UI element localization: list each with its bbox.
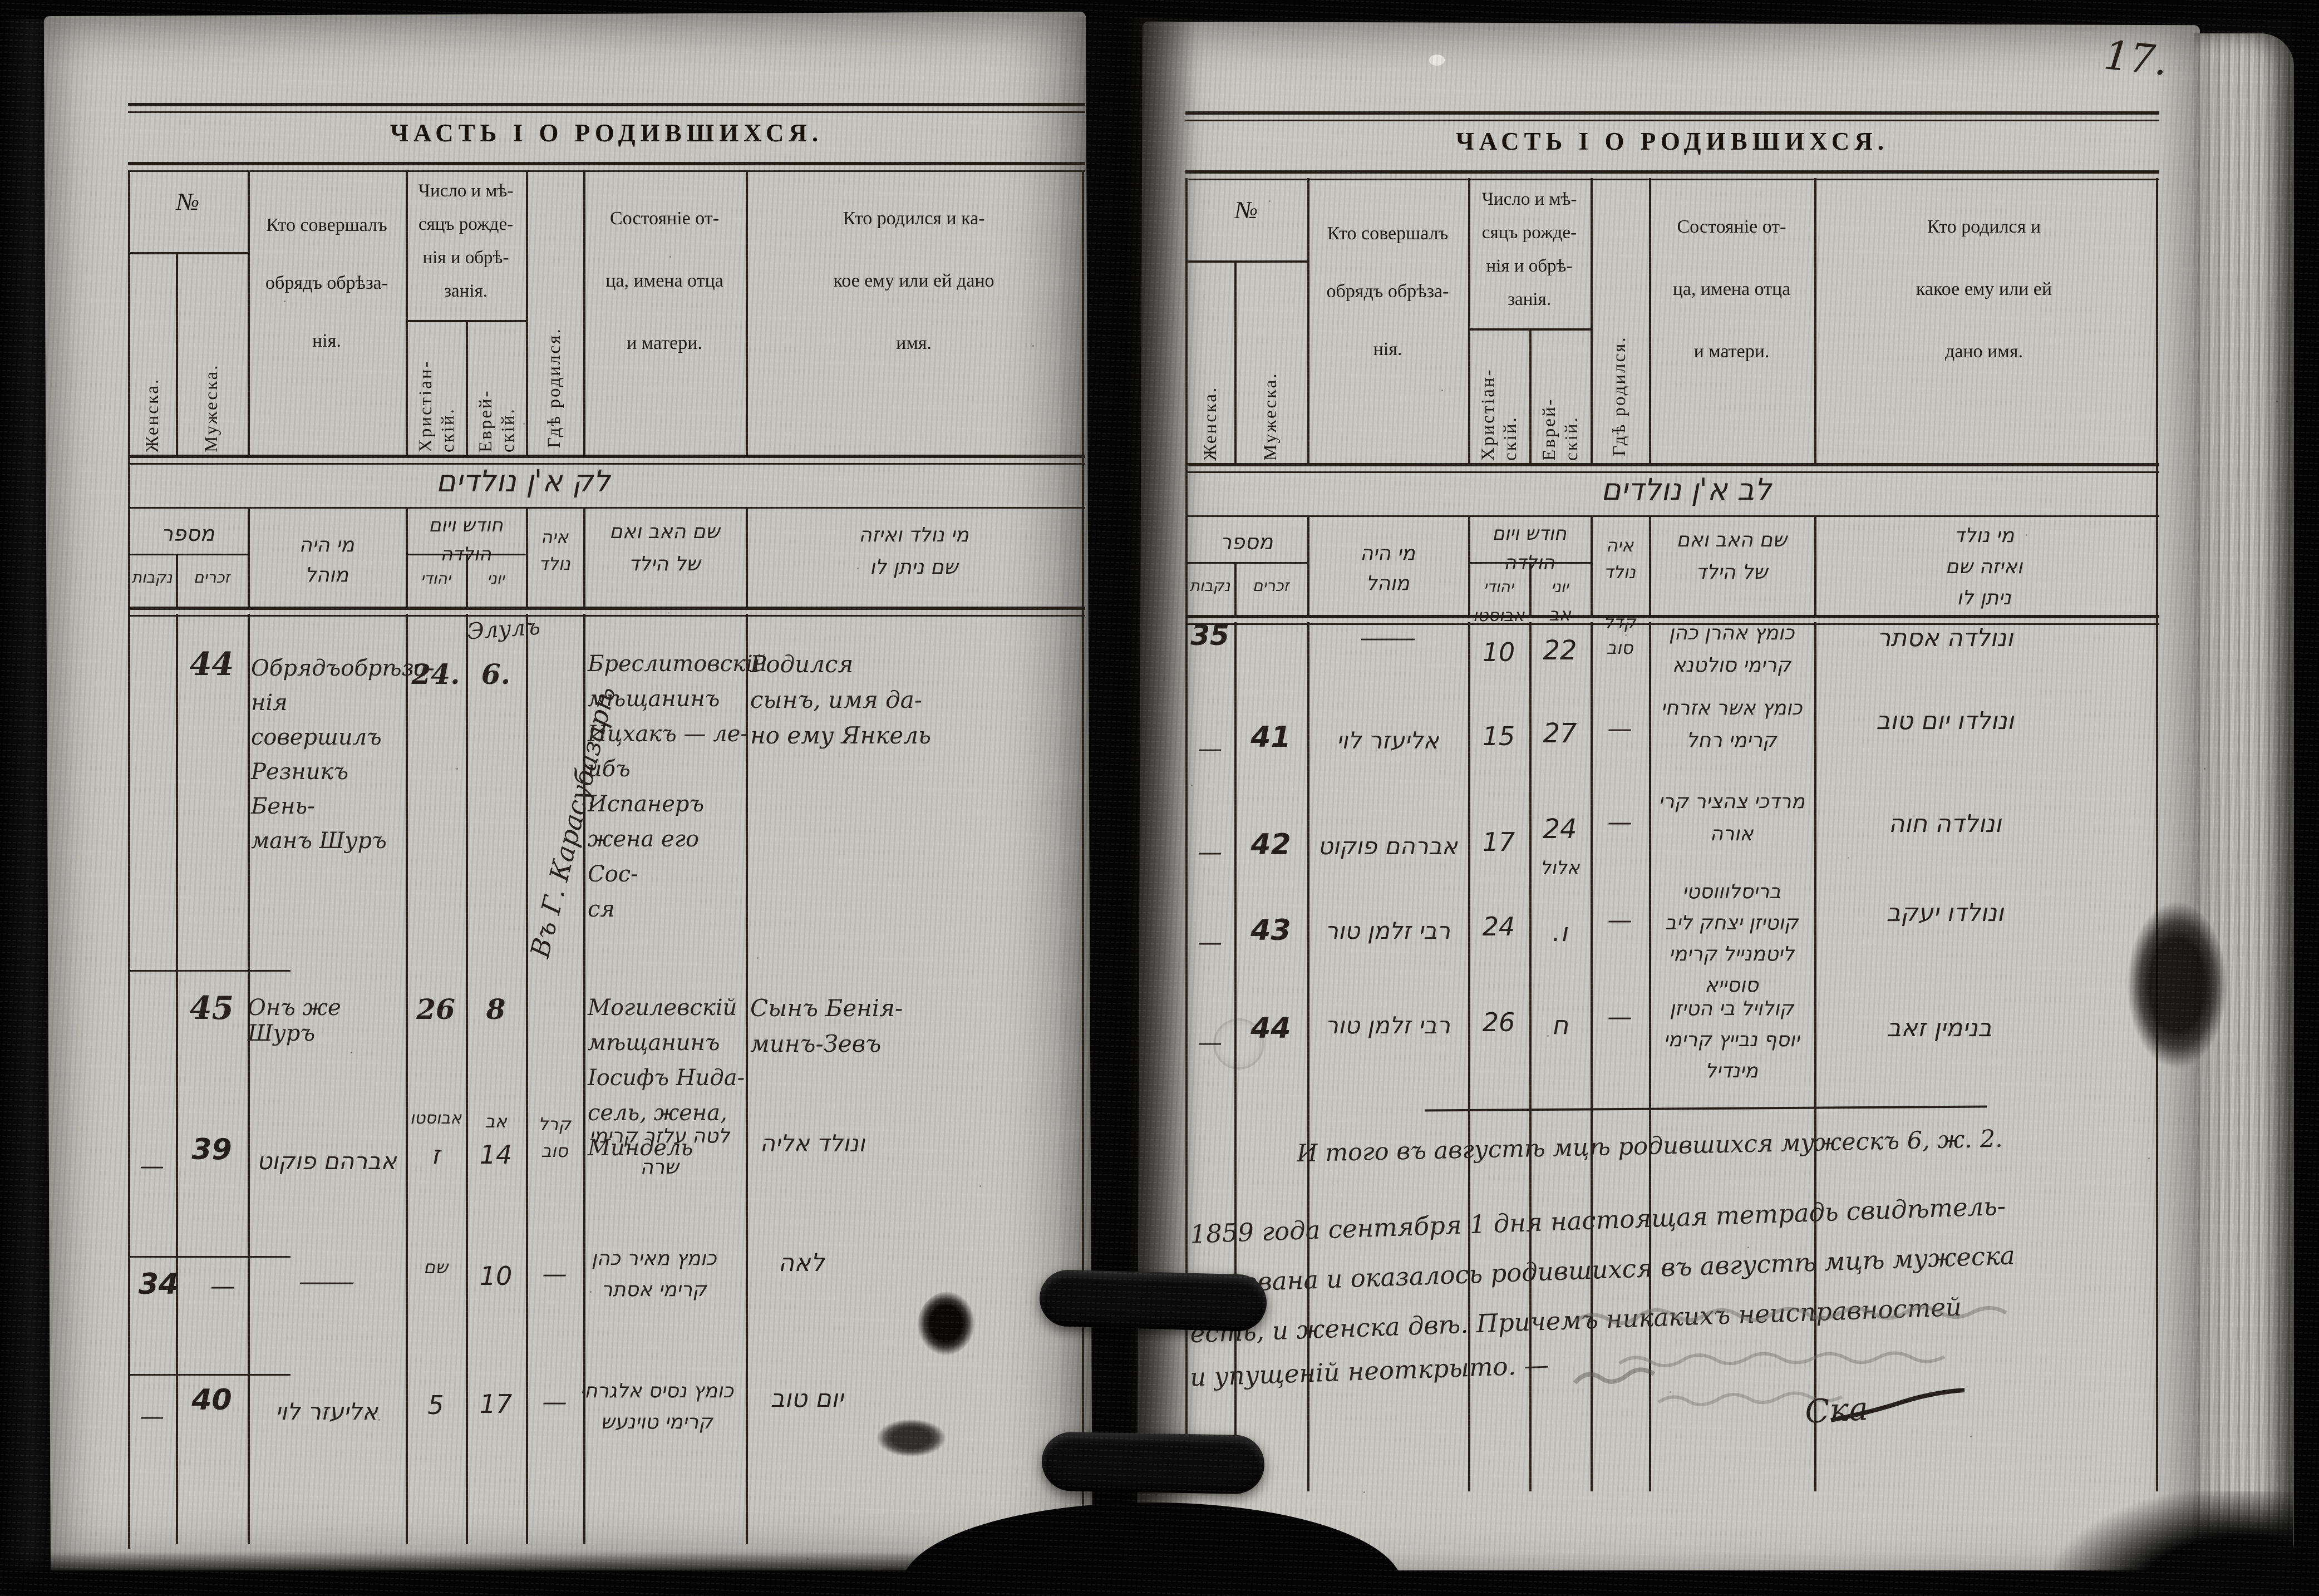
col-header-female: Женска. — [142, 378, 163, 452]
scan-right-band — [2292, 0, 2319, 1596]
jewish-date-cell: 27 — [1529, 718, 1591, 749]
he-header-num: מספר — [1185, 530, 1307, 554]
christian-date-cell: 26 — [1468, 1007, 1529, 1037]
name-cell: ונולדה חוה — [1820, 810, 2070, 838]
he-header-males: זכרים — [176, 568, 248, 587]
rule — [406, 320, 526, 322]
col-header-num: № — [128, 188, 248, 216]
col-header-where: Гдѣ родился. — [1609, 336, 1630, 456]
entry-number: 41 — [1234, 721, 1307, 754]
he-header-greek: יוני — [466, 569, 526, 588]
jewish-date-cell: ח — [1529, 1010, 1591, 1040]
page-edge-stack — [2194, 33, 2294, 1564]
name-cell: Родился сынъ, имя да- но ему Янкель — [746, 647, 1090, 753]
jewish-date-cell: 22 — [1529, 635, 1591, 666]
mohel-cell: אליעזר לוי — [1307, 727, 1468, 754]
female-dash: — — [1185, 735, 1234, 763]
christian-month-label: שם — [406, 1257, 466, 1278]
gutter-shadow — [1074, 17, 1197, 1569]
hebrew-title: לב א'ן נולדים — [1530, 472, 1842, 507]
certification-line-1: 1859 года сентября 1 дня настоящая тетра… — [1190, 1186, 2136, 1249]
col-header-jewish: Еврей- скій. — [475, 389, 519, 452]
christian-month-label: אבוסטו — [406, 1109, 466, 1128]
mohel-cell: רבי זלמן טור — [1307, 917, 1468, 944]
col-header-name: Кто родился и ка- кое ему или ей дано им… — [746, 188, 1082, 375]
name-cell: ונולדו יעקב — [1820, 899, 2070, 927]
jewish-month-label: Элулъ — [439, 612, 569, 647]
entry-number: 39 — [176, 1133, 248, 1166]
rule — [406, 554, 526, 555]
right-page-title: ЧАСТЬ I О РОДИВШИХСЯ. — [1185, 127, 2159, 156]
he-header-father: שם האב ואם של הילד — [583, 516, 746, 580]
he-header-greek: יוני — [1529, 578, 1591, 596]
where-dash: — — [1591, 1003, 1649, 1031]
he-header-jewish: יהודי — [1468, 578, 1529, 596]
rule — [1468, 328, 1591, 331]
rule — [128, 162, 1085, 172]
jewish-date-cell: 24 — [1529, 814, 1591, 845]
col-header-where: Гдѣ родился. — [544, 327, 565, 448]
paper-fleck — [1429, 55, 1445, 66]
rule — [1185, 170, 2159, 180]
entry-number-female: 35 — [1185, 619, 1234, 652]
he-header-females: נקבות — [1185, 577, 1234, 595]
rule — [128, 607, 1085, 617]
he-header-name: מי נולד ואיזה שם ניתן לו — [746, 519, 1082, 584]
signature-flourish — [1825, 1386, 1970, 1436]
mohel-cell: אליעזר לוי — [248, 1398, 406, 1425]
jewish-date-cell: 6. — [466, 658, 526, 691]
he-header-females: נקבות — [128, 568, 176, 587]
binding-clip-top — [1039, 1269, 1268, 1332]
entry-number: 44 — [176, 646, 248, 683]
name-cell: לאה — [707, 1249, 896, 1277]
rule — [1185, 111, 2159, 121]
where-born-cell: קדל סוב — [1591, 609, 1649, 661]
col-header-father: Состояніе от- ца, имена отца и матери. — [583, 188, 746, 375]
christian-date-cell: 15 — [1468, 721, 1529, 751]
where-dash: — — [1591, 715, 1649, 743]
rule — [128, 252, 248, 254]
monthly-total-line: И того въ августѣ мцѣ родившихся мужескъ… — [1297, 1122, 2154, 1168]
column-line — [1529, 329, 1532, 464]
father-cell: קולויל בי הטיזן יוסף נבייץ קרימי מינדיל — [1649, 993, 1814, 1087]
jewish-date-cell: 17 — [466, 1389, 526, 1419]
stain-ring — [1213, 1018, 1264, 1070]
name-cell: Сынъ Бенія- минъ-Зевъ — [746, 991, 1090, 1062]
jewish-month-below: אלול — [1529, 857, 1591, 879]
col-header-female: Женска. — [1200, 386, 1221, 461]
column-line — [1234, 262, 1237, 464]
column-line — [1082, 170, 1084, 1549]
book-scan: ЧАСТЬ I О РОДИВШИХСЯ. № Кто совершалъ об… — [0, 0, 2319, 1596]
rule — [128, 507, 1085, 509]
col-header-name: Кто родился и какое ему или ей дано имя. — [1814, 196, 2154, 383]
name-cell: ונולד אליה — [696, 1130, 929, 1157]
mohel-dash: — — [1307, 624, 1468, 652]
col-header-male: Мужеска. — [1261, 372, 1281, 461]
right-table: ЧАСТЬ I О РОДИВШИХСЯ. № Кто совершалъ об… — [1185, 111, 2159, 1503]
jewish-date-cell: 14 — [466, 1140, 526, 1170]
left-page-title: ЧАСТЬ I О РОДИВШИХСЯ. — [128, 119, 1085, 147]
he-header-num: מספר — [128, 521, 248, 546]
entry-number: 45 — [176, 989, 248, 1027]
christian-date-cell: 26 — [406, 993, 466, 1026]
col-header-male: Мужеска. — [201, 364, 222, 453]
he-header-where: איה נולד — [526, 524, 583, 577]
rule — [1185, 260, 1307, 263]
christian-date-cell: 24. — [406, 658, 466, 691]
mohel-cell: Онъ же Шуръ — [248, 995, 406, 1046]
col-header-mohel: Кто совершалъ обрядъ обрѣза- нія. — [1307, 205, 1468, 378]
entry-number: 43 — [1234, 914, 1307, 947]
column-line — [526, 170, 528, 456]
name-cell: ונולדה אסתר — [1820, 624, 2070, 652]
col-header-father: Состояніе от- ца, имена отца и матери. — [1649, 196, 1814, 383]
entry-number: 40 — [176, 1383, 248, 1417]
he-header-jewish: יהודי — [406, 569, 466, 588]
scan-bottom-left — [0, 1551, 946, 1596]
female-dash: — — [128, 1152, 176, 1180]
christian-date-cell: 5 — [406, 1390, 466, 1420]
col-header-date: Число и мѣ- сяцъ рожде- нія и обрѣ- зані… — [1468, 183, 1591, 316]
corner-shadow — [2054, 1491, 2293, 1596]
jewish-date-cell: 8 — [466, 993, 526, 1026]
col-header-christian: Христіан- скій. — [1477, 368, 1522, 461]
dust-specks — [167, 111, 169, 113]
entry-number-female: 34 — [128, 1268, 189, 1301]
father-cell: מרדכי צהציר קרי אורה — [1649, 786, 1814, 850]
col-header-date: Число и мѣ- сяцъ рожде- нія и обрѣ- зані… — [406, 174, 526, 308]
name-cell: בנימין זאב — [1809, 1014, 2070, 1042]
christian-month-label: אבוסטו — [1468, 606, 1529, 625]
christian-date-cell: 24 — [1468, 912, 1529, 942]
mohel-cell: אברהם פוקוט — [1307, 833, 1468, 860]
he-header-males: זכרים — [1234, 577, 1307, 595]
rule — [1185, 515, 2159, 517]
he-header-where: איה נולד — [1591, 532, 1649, 585]
rule — [1425, 1105, 1987, 1111]
mohel-cell: רבי זלמן טור — [1307, 1012, 1468, 1039]
entry-number: 42 — [1234, 828, 1307, 861]
rule — [128, 103, 1085, 113]
rule — [128, 970, 291, 972]
he-header-name: מי נולד ואיזה שם ניתן לו — [1814, 520, 2154, 614]
he-header-mohel: מי היה מוהל — [248, 530, 406, 590]
father-cell: בריסלוווסטי קוטיזן יצחק ליב ליטמנייל קרי… — [1649, 876, 1814, 1001]
column-line — [128, 170, 130, 1549]
dash: — — [1358, 624, 1417, 652]
column-line — [176, 253, 178, 456]
name-cell: יום טוב — [707, 1385, 907, 1413]
dash: — — [297, 1268, 356, 1296]
he-header-mohel: מי היה מוהל — [1307, 539, 1468, 599]
male-dash: — — [189, 1272, 256, 1301]
father-cell: כומץ אהרן כהן קרימי סולטנא — [1649, 617, 1814, 682]
father-cell: כומץ אשר אזרחי קרימי רחל — [1649, 692, 1814, 757]
col-header-jewish: Еврей- скій. — [1538, 397, 1583, 461]
where-dash: — — [1591, 808, 1649, 836]
rule — [128, 1374, 291, 1376]
name-cell: ונולדו יום טוב — [1820, 707, 2070, 735]
jewish-date-cell: ו. — [1529, 917, 1591, 947]
father-cell: Бреслитовскій мѣщанинъ Ицхакъ — ле- ибъ … — [583, 647, 750, 927]
he-header-date: חודש ויום הולדה — [406, 511, 526, 569]
christian-date-cell: 10 — [466, 1261, 526, 1291]
column-line — [1591, 178, 1593, 464]
ink-smudge — [877, 1419, 946, 1457]
jewish-month-label: אב — [466, 1111, 526, 1132]
col-header-mohel: Кто совершалъ обрядъ обрѣза- нія. — [248, 196, 406, 370]
binding-clip-bottom — [1041, 1432, 1265, 1495]
column-line — [466, 321, 468, 456]
christian-date-cell: 10 — [1468, 637, 1529, 667]
rule — [1185, 562, 1307, 564]
female-dash: — — [128, 1402, 176, 1431]
female-dash: — — [1185, 928, 1234, 957]
female-dash: — — [1185, 838, 1234, 866]
christian-date-cell: ז — [406, 1140, 466, 1170]
rule — [128, 554, 248, 555]
certification-line-2: ствована и оказалось родившихся въ авгус… — [1190, 1237, 2114, 1299]
col-header-christian: Христіан- скій. — [415, 359, 459, 452]
christian-date-cell: 17 — [1468, 827, 1529, 857]
mohel-dash: — — [248, 1268, 406, 1296]
mohel-cell: Обрядъобрѣза- нія совершилъ Резникъ Бень… — [248, 651, 409, 858]
he-header-father: שם האב ואם של הילד — [1649, 524, 1814, 589]
mohel-cell: אברהם פוקוט — [248, 1147, 406, 1175]
col-header-num: № — [1185, 196, 1307, 224]
rule — [128, 1256, 291, 1258]
he-header-date: חודש ויום הולדה — [1468, 519, 1591, 577]
jewish-month-label: אב — [1529, 604, 1591, 625]
where-dash: — — [1591, 906, 1649, 934]
hebrew-title: לק א'ן נולדים — [367, 464, 679, 499]
rule — [1468, 562, 1591, 564]
